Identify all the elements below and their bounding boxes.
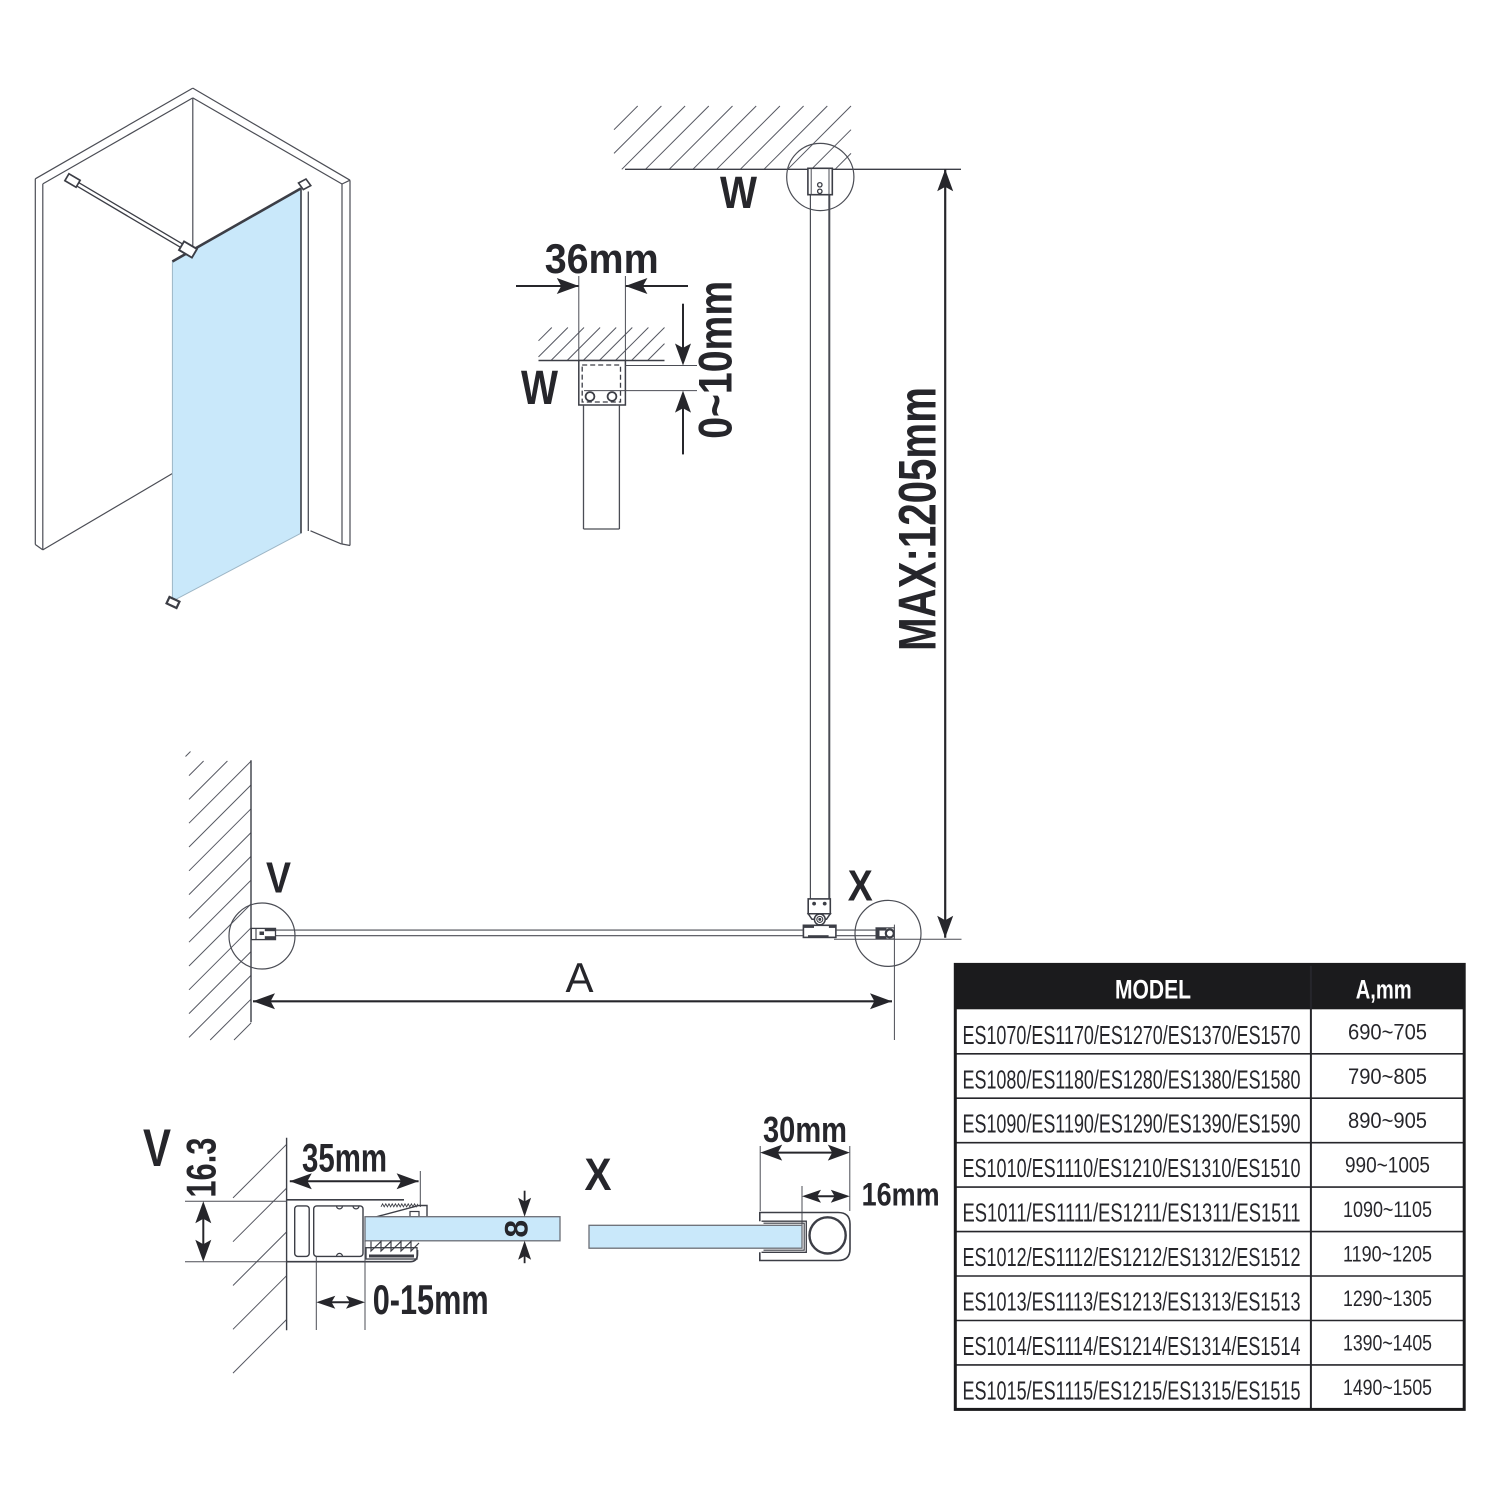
svg-text:ES1090/ES1190/ES1290/ES1390/ES: ES1090/ES1190/ES1290/ES1390/ES1590 — [963, 1109, 1301, 1139]
svg-text:1490~1505: 1490~1505 — [1343, 1375, 1432, 1400]
svg-text:ES1013/ES1113/ES1213/ES1313/ES: ES1013/ES1113/ES1213/ES1313/ES1513 — [963, 1287, 1301, 1317]
svg-text:ES1070/ES1170/ES1270/ES1370/ES: ES1070/ES1170/ES1270/ES1370/ES1570 — [963, 1020, 1301, 1050]
svg-text:1090~1105: 1090~1105 — [1343, 1197, 1432, 1222]
svg-text:1190~1205: 1190~1205 — [1343, 1242, 1432, 1267]
svg-text:V: V — [266, 854, 292, 903]
svg-text:16.3: 16.3 — [178, 1138, 225, 1198]
svg-text:0-15mm: 0-15mm — [373, 1276, 489, 1323]
svg-text:W: W — [521, 362, 559, 415]
svg-text:35mm: 35mm — [302, 1136, 387, 1180]
svg-text:890~905: 890~905 — [1348, 1108, 1427, 1133]
svg-text:790~805: 790~805 — [1348, 1064, 1427, 1089]
svg-text:0~10mm: 0~10mm — [689, 281, 742, 439]
svg-text:ES1015/ES1115/ES1215/ES1315/ES: ES1015/ES1115/ES1215/ES1315/ES1515 — [963, 1375, 1301, 1405]
svg-text:X: X — [585, 1149, 612, 1200]
svg-text:MAX:1205mm: MAX:1205mm — [889, 387, 948, 651]
svg-text:A: A — [565, 954, 593, 1001]
svg-text:16mm: 16mm — [862, 1177, 940, 1213]
svg-text:1390~1405: 1390~1405 — [1343, 1331, 1432, 1356]
svg-text:1290~1305: 1290~1305 — [1343, 1286, 1432, 1311]
svg-text:A,mm: A,mm — [1356, 975, 1412, 1005]
svg-text:8: 8 — [499, 1220, 535, 1238]
svg-text:30mm: 30mm — [763, 1109, 847, 1150]
svg-text:ES1080/ES1180/ES1280/ES1380/ES: ES1080/ES1180/ES1280/ES1380/ES1580 — [963, 1064, 1301, 1094]
svg-text:ES1010/ES1110/ES1210/ES1310/ES: ES1010/ES1110/ES1210/ES1310/ES1510 — [963, 1153, 1301, 1183]
svg-text:MODEL: MODEL — [1115, 975, 1191, 1005]
svg-text:ES1012/ES1112/ES1212/ES1312/ES: ES1012/ES1112/ES1212/ES1312/ES1512 — [963, 1242, 1301, 1272]
svg-text:990~1005: 990~1005 — [1345, 1153, 1430, 1178]
svg-text:690~705: 690~705 — [1348, 1019, 1427, 1044]
svg-text:X: X — [848, 861, 873, 910]
svg-text:ES1011/ES1111/ES1211/ES1311/ES: ES1011/ES1111/ES1211/ES1311/ES1511 — [963, 1198, 1301, 1228]
svg-text:W: W — [720, 167, 757, 218]
svg-text:ES1014/ES1114/ES1214/ES1314/ES: ES1014/ES1114/ES1214/ES1314/ES1514 — [963, 1331, 1301, 1361]
svg-text:V: V — [143, 1119, 171, 1178]
svg-text:36mm: 36mm — [545, 235, 659, 282]
